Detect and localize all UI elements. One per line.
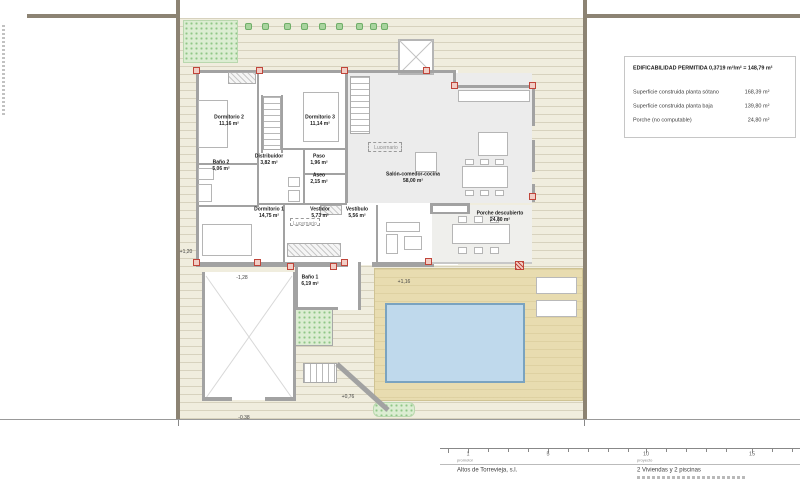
wall: [298, 307, 338, 310]
column: [423, 67, 430, 74]
driveway-ramp: [202, 272, 296, 400]
ramp-wall: [293, 272, 296, 398]
room-area: 5,06 m²: [212, 166, 229, 172]
site-plan: Dormitorio 211,16 m² Dormitorio 311,14 m…: [0, 0, 800, 480]
room-label-vestibulo: Vestíbulo5,56 m²: [322, 206, 392, 219]
kitchen-peninsula: [415, 152, 437, 172]
plant-icon: [381, 23, 388, 30]
room-label-aseo: Aseo2,15 m²: [284, 172, 354, 185]
scale-tick-label: 1: [458, 451, 478, 458]
room-area: 24,80 m²: [490, 217, 510, 223]
room-label-bano-1: Baño 16,19 m²: [275, 274, 345, 287]
wall: [283, 148, 345, 150]
ground-tick: [178, 420, 179, 426]
room-label-dormitorio-2: Dormitorio 211,16 m²: [194, 114, 264, 127]
chair: [458, 247, 467, 254]
info-row-label: Superficie construida planta sótano: [633, 89, 719, 95]
sunbed: [536, 277, 577, 294]
margin-watermark: [2, 25, 5, 117]
room-area: 2,15 m²: [310, 179, 327, 185]
info-box: EDIFICABILIDAD PERMITIDA 0,3719 m²/m² = …: [624, 56, 796, 138]
chair: [480, 159, 489, 165]
info-row-value: 24,80 m²: [748, 117, 770, 123]
kitchen-counter: [458, 90, 530, 102]
plant-icon: [370, 23, 377, 30]
room-name: Dormitorio 1: [254, 207, 284, 213]
room-name: Vestíbulo: [346, 207, 368, 213]
lucernario-label: Lucernario: [361, 145, 411, 151]
info-row-label: Superficie construida planta baja: [633, 103, 713, 109]
info-row-label: Porche (no computable): [633, 117, 692, 123]
plant-icon: [262, 23, 269, 30]
boundary-line-left: [176, 0, 180, 420]
column: [451, 82, 458, 89]
lucernario-label: Lucernario: [280, 221, 330, 227]
column: [515, 261, 524, 270]
plant-icon: [319, 23, 326, 30]
staircase: [263, 96, 281, 150]
info-row-value: 168,39 m²: [745, 89, 770, 95]
chair: [465, 159, 474, 165]
column: [193, 259, 200, 266]
outdoor-table: [452, 224, 510, 244]
room-name: Porche descubierto: [477, 211, 524, 217]
chair: [465, 190, 474, 196]
sink: [288, 190, 300, 202]
column: [529, 82, 536, 89]
info-row-value: 139,80 m²: [745, 103, 770, 109]
room-label-salon: Salón-comedor-cocina58,00 m²: [378, 171, 448, 184]
wall: [265, 397, 296, 401]
room-area: 5,56 m²: [348, 213, 365, 219]
scale-tick-label: 5: [538, 451, 558, 458]
lawn-strip: [373, 402, 415, 417]
room-name: Dormitorio 3: [305, 115, 335, 121]
ground-tick: [584, 420, 585, 426]
plant-icon: [356, 23, 363, 30]
swimming-pool: [385, 303, 525, 383]
wall: [281, 95, 283, 153]
wall: [532, 88, 535, 126]
promotor-label: promotor: [457, 458, 473, 463]
bathroom-fixture: [198, 184, 212, 202]
column: [425, 258, 432, 265]
exterior-stairs: [303, 363, 337, 383]
column: [330, 263, 337, 270]
boundary-line-top-right: [583, 14, 800, 18]
boundary-line-right: [583, 0, 587, 420]
ramp-wall: [202, 272, 205, 398]
column: [529, 193, 536, 200]
chair: [474, 247, 483, 254]
level-marker: +0,76: [333, 394, 363, 400]
level-marker: +1,16: [389, 279, 419, 285]
wall: [202, 397, 232, 401]
column: [254, 259, 261, 266]
plant-icon: [284, 23, 291, 30]
column: [341, 259, 348, 266]
scale-tick-label: 10: [636, 451, 656, 458]
wall: [532, 140, 535, 172]
room-name: Distribuidor: [255, 154, 283, 160]
room-name: Baño 2: [213, 160, 230, 166]
room-name: Salón-comedor-cocina: [386, 172, 440, 178]
outdoor-sofa: [386, 234, 398, 254]
info-box-title: EDIFICABILIDAD PERMITIDA 0,3719 m²/m² = …: [633, 65, 795, 71]
room-area: 6,19 m²: [301, 281, 318, 287]
room-name: Paso: [313, 154, 325, 160]
level-marker: +1,20: [171, 249, 201, 255]
wall: [257, 163, 259, 205]
planter-top-left: [183, 20, 238, 63]
level-marker: -0,38: [229, 415, 259, 421]
room-label-porche: Porche descubierto24,80 m²: [465, 210, 535, 223]
room-area: 58,00 m²: [403, 178, 423, 184]
room-area: 1,96 m²: [310, 160, 327, 166]
ground-line: [0, 419, 800, 420]
wall: [358, 262, 361, 310]
boundary-line-top-left: [27, 14, 180, 18]
column: [341, 67, 348, 74]
room-label-paso: Paso1,96 m²: [284, 153, 354, 166]
wall: [453, 85, 535, 88]
outdoor-sofa: [386, 222, 420, 232]
wardrobe: [228, 72, 256, 84]
chair: [480, 190, 489, 196]
kitchen-island: [478, 132, 508, 156]
chair: [495, 159, 504, 165]
column: [256, 67, 263, 74]
plant-icon: [336, 23, 343, 30]
column: [193, 67, 200, 74]
proyecto-value: 2 Viviendas y 2 piscinas: [637, 466, 701, 473]
wall: [196, 262, 348, 267]
chair: [490, 247, 499, 254]
room-area: 14,75 m²: [259, 213, 279, 219]
bed: [202, 224, 252, 256]
porch-bench-inner: [433, 206, 467, 212]
project-address-partial: [637, 476, 747, 479]
proyecto-label: proyecto: [637, 458, 652, 463]
plant-icon: [301, 23, 308, 30]
scale-tick-label: 15: [742, 451, 762, 458]
closet: [287, 243, 341, 257]
plant-icon: [245, 23, 252, 30]
room-area: 3,82 m²: [260, 160, 277, 166]
room-area: 11,16 m²: [219, 121, 239, 127]
room-name: Aseo: [313, 173, 325, 179]
promotor-value: Altos de Torrevieja, s.l.: [457, 466, 517, 473]
title-block-divider: [440, 464, 800, 465]
dining-table: [462, 166, 508, 188]
room-name: Dormitorio 2: [214, 115, 244, 121]
room-area: 11,14 m²: [310, 121, 330, 127]
scale-bar-line: [440, 448, 800, 449]
level-marker: -1,28: [227, 275, 257, 281]
room-label-dormitorio-3: Dormitorio 311,14 m²: [285, 114, 355, 127]
column: [287, 263, 294, 270]
room-name: Baño 1: [302, 275, 319, 281]
chair: [495, 190, 504, 196]
outdoor-armchair: [404, 236, 422, 250]
sunbed: [536, 300, 577, 317]
